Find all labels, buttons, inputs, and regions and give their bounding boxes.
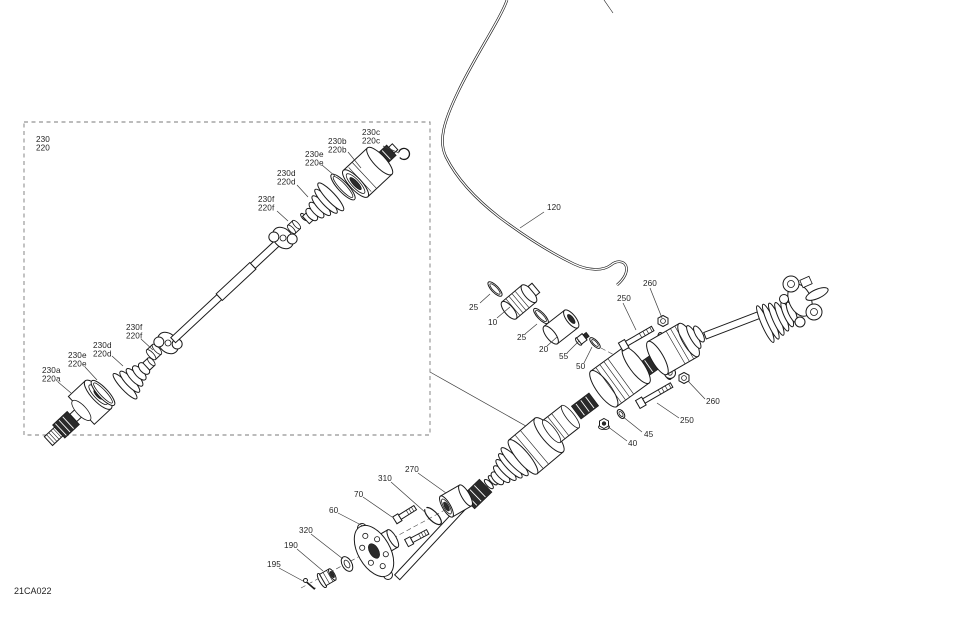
label-260-top-leader-line [650, 288, 662, 318]
label-250-top: 250 [617, 294, 636, 330]
snap-ring-230c [399, 148, 410, 159]
label-60: 60 [329, 506, 363, 526]
label-25-1: 25 [469, 294, 490, 312]
label-55: 55 [559, 341, 579, 361]
diagram-code: 21CA022 [14, 586, 52, 596]
label-250-top-text: 250 [617, 294, 631, 303]
carrier-nut-upper [658, 316, 668, 327]
castle-nut-190 [316, 566, 339, 588]
label-250-low-text: 250 [680, 416, 694, 425]
detail-box-pointer-line [430, 372, 540, 434]
label-40-leader-line [607, 426, 627, 441]
label-230d-220d-low-leader-line [112, 356, 123, 366]
hub-bolt-1 [393, 504, 418, 524]
label-45: 45 [622, 416, 654, 439]
label-230e-220e-low-text: 230e220e [68, 351, 87, 369]
label-50: 50 [576, 347, 592, 371]
axle-spline-mid [571, 393, 598, 419]
label-55-leader-line [567, 341, 579, 353]
label-25-2: 25 [517, 324, 537, 342]
label-260-low-text: 260 [706, 397, 720, 406]
detail-shaft [170, 234, 287, 344]
label-230b-220b-text: 230b220b [328, 137, 347, 155]
label-230a-220a-leader-line [58, 382, 71, 393]
label-230a-220a: 230a220a [42, 366, 71, 393]
label-230e-220e-low-leader-line [85, 367, 97, 380]
label-230f-220f-top: 230f220f [258, 195, 288, 221]
label-20-text: 20 [539, 345, 549, 354]
label-230d-220d-low-text: 230d220d [93, 341, 112, 359]
label-20: 20 [539, 337, 557, 354]
label-230-220: 230220 [36, 135, 50, 153]
carrier-nut-lower [679, 373, 689, 384]
label-195-leader-line [279, 568, 303, 581]
label-250-top-leader-line [623, 303, 636, 330]
vent-hose [442, 0, 626, 285]
label-70: 70 [354, 490, 392, 517]
label-25-2-text: 25 [517, 333, 527, 342]
label-40: 40 [607, 426, 638, 448]
label-320-text: 320 [299, 526, 313, 535]
label-310: 310 [378, 474, 426, 513]
label-260-low: 260 [688, 381, 720, 406]
label-60-text: 60 [329, 506, 339, 515]
cotter-pin-195 [304, 579, 316, 590]
label-230d-220d-top: 230d220d [277, 169, 308, 197]
label-230d-220d-top-text: 230d220d [277, 169, 296, 187]
nut-40 [599, 419, 610, 430]
label-270-text: 270 [405, 465, 419, 474]
label-55-text: 55 [559, 352, 569, 361]
label-250-low: 250 [657, 403, 694, 425]
label-310-text: 310 [378, 474, 392, 483]
label-10-text: 10 [488, 318, 498, 327]
label-230f-220f-top-text: 230f220f [258, 195, 275, 213]
parts-diagram-page: 230220230c220c230b220b230e220e230d220d23… [0, 0, 960, 622]
label-190-text: 190 [284, 541, 298, 550]
axle-shaft-right [704, 311, 763, 339]
hose-tail [604, 0, 613, 13]
label-25-2-leader-line [525, 324, 537, 334]
fitting-55 [574, 331, 590, 346]
label-270-leader-line [418, 473, 446, 493]
label-230f-220f-top-leader-line [277, 211, 288, 221]
label-70-leader-line [363, 497, 392, 517]
label-230-220-text: 230220 [36, 135, 50, 153]
label-195: 195 [267, 560, 303, 581]
label-320: 320 [299, 526, 343, 559]
label-230f-220f-low: 230f220f [126, 323, 153, 350]
label-120-text: 120 [547, 203, 561, 212]
label-230e-220e-top-text: 230e220e [305, 150, 324, 168]
washer-50 [588, 336, 602, 350]
label-260-low-leader-line [688, 381, 705, 399]
exploded-parts-diagram: 230220230c220c230b220b230e220e230d220d23… [0, 0, 960, 622]
label-50-text: 50 [576, 362, 586, 371]
label-230d-220d-top-leader-line [297, 185, 308, 197]
main-axle-assembly [301, 276, 830, 589]
label-50-leader-line [584, 347, 592, 363]
label-230e-220e-top-leader-line [322, 165, 335, 176]
label-230d-220d-low: 230d220d [93, 341, 123, 366]
wheel-hub-60 [346, 519, 402, 583]
label-40-text: 40 [628, 439, 638, 448]
label-190-leader-line [297, 549, 323, 571]
oring-25-second [532, 306, 551, 325]
label-260-top: 260 [643, 279, 662, 318]
label-60-leader-line [338, 513, 363, 526]
label-230c-220c-text: 230c220c [362, 128, 380, 146]
label-25-1-text: 25 [469, 303, 479, 312]
label-45-text: 45 [644, 430, 654, 439]
label-230a-220a-text: 230a220a [42, 366, 61, 384]
label-120-leader-line [520, 212, 544, 228]
snap-ring-310 [425, 508, 442, 525]
label-45-leader-line [622, 416, 642, 432]
label-230f-220f-low-text: 230f220f [126, 323, 143, 341]
label-10: 10 [488, 307, 510, 327]
label-250-low-leader-line [657, 403, 679, 418]
label-230f-220f-low-leader-line [141, 339, 153, 350]
label-25-1-leader-line [480, 294, 490, 303]
label-270: 270 [405, 465, 446, 493]
detail-axle-assembly [35, 134, 409, 455]
label-70-text: 70 [354, 490, 364, 499]
label-120: 120 [520, 203, 561, 228]
label-195-text: 195 [267, 560, 281, 569]
label-260-top-text: 260 [643, 279, 657, 288]
label-320-leader-line [311, 534, 343, 559]
label-190: 190 [284, 541, 323, 571]
